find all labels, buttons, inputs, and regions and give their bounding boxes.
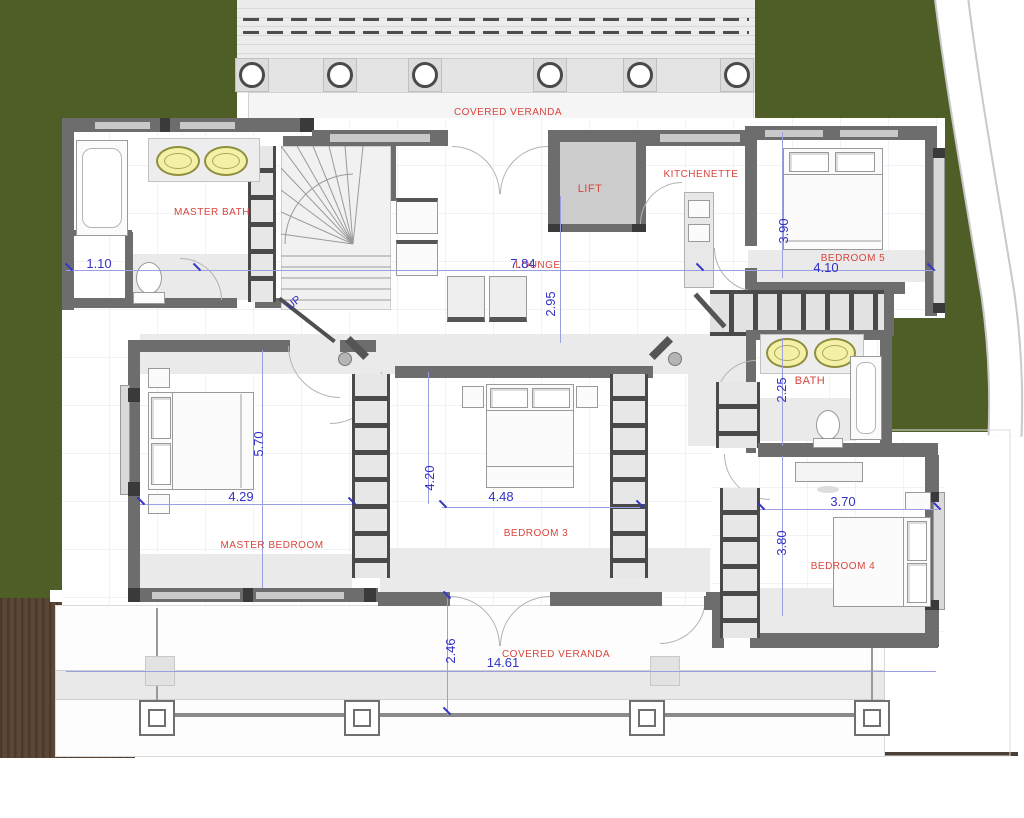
room-label-bath: BATH xyxy=(782,374,838,388)
pillow xyxy=(907,563,927,603)
toilet-bowl xyxy=(136,262,162,294)
room-label-master-bath: MASTER BATH xyxy=(152,206,272,220)
room-label-bedroom3: BEDROOM 3 xyxy=(486,527,586,541)
wall-segment xyxy=(378,592,450,606)
round-column xyxy=(327,62,353,88)
wall-block xyxy=(632,224,646,232)
grass-left xyxy=(0,118,64,605)
roof-dashed-line xyxy=(243,31,749,34)
wall-segment xyxy=(550,592,662,606)
pillow xyxy=(907,521,927,561)
floor-shade xyxy=(380,548,710,592)
dim-bedroom5-width: 4.10 xyxy=(796,261,856,275)
roof-hatch xyxy=(237,0,755,58)
nightstand xyxy=(905,492,931,510)
dim-bedroom3-width: 4.48 xyxy=(471,490,531,504)
dimension-line xyxy=(442,507,640,508)
desk xyxy=(795,462,863,482)
wardrobe-hinge xyxy=(668,352,682,366)
veranda-rail xyxy=(140,713,872,717)
room-label-kitchenette: KITCHENETTE xyxy=(646,168,756,182)
window xyxy=(152,592,240,599)
room-label-lift: LIFT xyxy=(566,182,614,196)
window xyxy=(840,130,898,137)
window xyxy=(660,134,740,142)
dim-bedroom4-depth: 3.80 xyxy=(775,521,789,565)
floor-plan: COVERED VERANDA MASTER BATH LIFT KITCHEN… xyxy=(0,0,1024,818)
bed xyxy=(783,174,883,250)
pillow xyxy=(490,388,528,408)
nightstand xyxy=(148,368,170,388)
window xyxy=(95,122,150,129)
dimension-line xyxy=(760,509,938,510)
sink xyxy=(156,146,200,176)
closet-shelves xyxy=(716,382,760,448)
square-column-core xyxy=(353,709,371,727)
bed-foot xyxy=(486,466,574,488)
window xyxy=(330,134,430,142)
kitchen-sink xyxy=(688,200,710,218)
pillow xyxy=(151,443,171,485)
wall-block xyxy=(933,148,945,158)
bay-window xyxy=(933,148,945,313)
floor-shade xyxy=(756,398,856,441)
dimension-line xyxy=(140,504,352,505)
bed-foot-line xyxy=(785,240,881,242)
veranda-post-line xyxy=(156,608,158,702)
wall-block xyxy=(160,118,170,132)
window xyxy=(256,592,344,599)
dim-bedroom4-width: 3.70 xyxy=(813,495,873,509)
nightstand xyxy=(462,386,484,408)
lounge-chair xyxy=(447,276,485,322)
wall-block xyxy=(243,588,253,602)
lounge-chair xyxy=(489,276,527,322)
bed-foot-line xyxy=(240,394,242,488)
roof-dashed-line xyxy=(243,18,749,21)
shelf-unit xyxy=(396,198,438,234)
wall-segment xyxy=(548,130,648,142)
wall-block xyxy=(933,303,945,313)
dim-master-bedroom-width: 4.29 xyxy=(211,490,271,504)
dim-lounge-depth: 2.95 xyxy=(544,282,558,326)
desk-chair xyxy=(817,486,839,493)
room-label-veranda-top: COVERED VERANDA xyxy=(418,106,598,120)
dim-master-bedroom-depth: 5.70 xyxy=(252,422,266,466)
dim-bath-depth: 2.25 xyxy=(775,368,789,412)
room-label-master-bedroom: MASTER BEDROOM xyxy=(202,539,342,553)
toilet-tank xyxy=(133,292,165,304)
square-column-core xyxy=(863,709,881,727)
round-column xyxy=(239,62,265,88)
wall-segment xyxy=(548,130,560,230)
wall-segment xyxy=(745,126,757,246)
wall-segment xyxy=(62,118,74,310)
square-column-core xyxy=(638,709,656,727)
dim-bedroom3-depth: 4.20 xyxy=(423,456,437,500)
wall-segment xyxy=(750,633,938,648)
sink xyxy=(204,146,248,176)
square-column-core xyxy=(148,709,166,727)
bathtub-basin xyxy=(82,148,122,228)
room-label-bedroom4: BEDROOM 4 xyxy=(793,560,893,574)
pillow xyxy=(835,152,875,172)
round-column xyxy=(627,62,653,88)
pillow xyxy=(532,388,570,408)
dim-lounge-width: 7.84 xyxy=(493,257,553,271)
wall-segment xyxy=(758,443,938,457)
staircase xyxy=(281,146,391,310)
veranda-slab xyxy=(55,670,885,700)
wardrobe xyxy=(610,374,648,578)
toilet-bowl xyxy=(816,410,840,440)
dim-bedroom5-depth: 3.90 xyxy=(777,209,791,253)
wall-block xyxy=(128,588,140,602)
sink xyxy=(766,338,808,368)
dimension-line xyxy=(782,132,783,278)
nightstand xyxy=(576,386,598,408)
colonnade-band xyxy=(237,58,755,93)
kitchen-hob xyxy=(688,224,710,242)
toilet-tank xyxy=(813,438,843,448)
round-column xyxy=(412,62,438,88)
bathtub-basin xyxy=(856,362,876,434)
grass-top-left xyxy=(0,0,237,122)
dim-closet-width: 1.10 xyxy=(69,257,129,271)
window xyxy=(765,130,823,137)
wall-block xyxy=(364,588,376,602)
dimension-line xyxy=(66,671,936,672)
wall-block xyxy=(128,388,140,402)
dim-veranda-depth: 2.46 xyxy=(444,629,458,673)
pillow xyxy=(789,152,829,172)
dim-veranda-width: 14.61 xyxy=(473,656,533,670)
floor-shade xyxy=(140,554,352,592)
round-column xyxy=(724,62,750,88)
wardrobe xyxy=(352,374,390,578)
wardrobe-hinge xyxy=(338,352,352,366)
wall-segment xyxy=(128,340,290,352)
wardrobe xyxy=(720,488,760,638)
window xyxy=(180,122,235,129)
pillow xyxy=(151,397,171,439)
wall-block xyxy=(128,482,140,496)
round-column xyxy=(537,62,563,88)
bed xyxy=(486,410,574,468)
